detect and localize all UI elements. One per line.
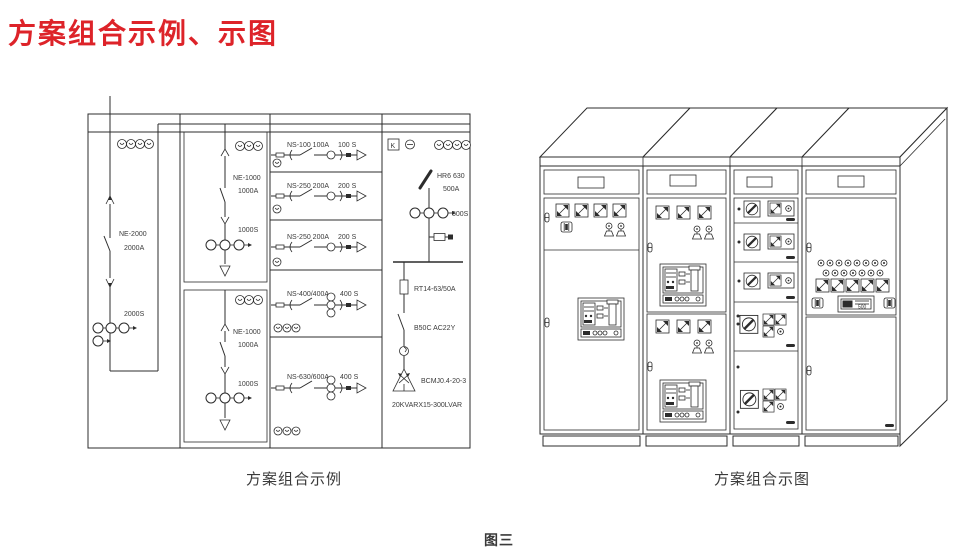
bus-tie-panel-top: NE-1000 1000A 1000S [184,124,267,282]
cabinet-2 [643,166,730,446]
comp-contactor-label: B50C AC22Y [414,325,456,332]
comp-ct-label: 500S [452,211,469,218]
tie-bottom-model-label: NE-1000 [233,329,261,336]
cabinet-1 [540,166,643,446]
feeder-5-model-label: NS-630/600A [287,374,329,381]
feeder-4-ct-label: 400 S [340,291,359,298]
tie-top-rating-label: 1000A [238,188,259,195]
feeder-row-3: NS-250 200A 200 S [271,234,366,266]
incoming-panel: NE-2000 2000A 2000S [93,96,158,371]
feeder-4-model-label: NS-400/400A [287,291,329,298]
feeder-panel: NS-100 100A 100 S NS-250 200A 200 S NS-2 [270,142,382,435]
controller-display-value: 500 [858,305,867,311]
cabinet-side-panel [900,108,947,446]
feeder-3-ct-label: 200 S [338,234,357,241]
feeder-3-model-label: NS-250 200A [287,234,329,241]
feeder-row-4: NS-400/400A 400 S [271,291,366,332]
comp-switch-rating-label: 500A [443,186,460,193]
schematic-diagram: NE-2000 2000A 2000S NE-1000 1000A 1000S [85,90,480,460]
feeder-row-2: NS-250 200A 200 S [271,183,366,213]
feeder-1-ct-label: 100 S [338,142,357,149]
feeder-1-model-label: NS-100 100A [287,142,329,149]
incoming-meter-icons [118,140,154,149]
feeder-5-ct-label: 400 S [340,374,359,381]
cabinet-drawing: 500 [530,88,950,460]
page-title: 方案组合示例、示图 [8,12,278,52]
compensation-meter-icons [435,141,471,150]
tie-top-meter-icons [236,142,263,151]
feeder-row-1: NS-100 100A 100 S [271,142,366,167]
bus-tie-panel-bottom: NE-1000 1000A 1000S [184,290,267,442]
incoming-ct-label: 2000S [124,311,145,318]
incoming-ct-symbols [93,323,137,346]
comp-bank-total-label: 20KVARX15-300LVAR [392,402,462,409]
cabinet-4: 500 [802,166,900,446]
incoming-rating-label: 2000A [124,245,145,252]
cabinet-3 [730,166,802,446]
feeder-2-model-label: NS-250 200A [287,183,329,190]
k-relay-label: K [391,143,396,150]
tie-top-model-label: NE-1000 [233,175,261,182]
figure-number: 图三 [459,530,539,550]
comp-fuse-label: RT14-63/50A [414,286,456,293]
comp-switch-model-label: HR6 630 [437,173,465,180]
cabinet-roof [540,108,947,157]
cabinet-caption: 方案组合示图 [714,468,810,489]
capacitor-meter-row [816,279,889,292]
incoming-model-label: NE-2000 [119,231,147,238]
tie-bottom-ct-label: 1000S [238,381,259,388]
cabinet-top-rim [540,157,900,166]
tie-bottom-rating-label: 1000A [238,342,259,349]
compensation-panel: K HR6 630 500A 500S RT14-63/50A B50C AC2… [388,139,471,409]
schematic-caption: 方案组合示例 [246,468,342,489]
feeder-2-ct-label: 200 S [338,183,357,190]
feeder-row-5: NS-630/600A 400 S [271,374,366,435]
tie-top-ct-label: 1000S [238,227,259,234]
tie-bottom-meter-icons [236,296,263,305]
comp-capacitor-label: BCMJ0.4-20-3 [421,378,466,385]
